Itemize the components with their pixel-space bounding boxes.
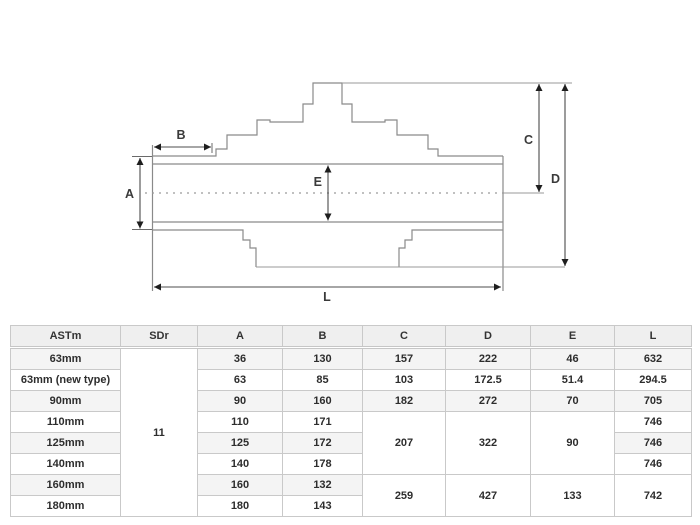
value-cell: 322 — [446, 412, 531, 475]
value-cell: 125 — [198, 433, 283, 454]
value-cell: 133 — [531, 475, 615, 517]
column-header: A — [198, 326, 283, 348]
value-cell: 272 — [446, 391, 531, 412]
table-row: 63mm (new type)6385103172.551.4294.5 — [11, 370, 692, 391]
sdr-value-cell: 11 — [121, 348, 198, 517]
value-cell: 742 — [615, 475, 692, 517]
column-header: D — [446, 326, 531, 348]
label-D: D — [551, 172, 560, 186]
value-cell: 160 — [198, 475, 283, 496]
value-cell: 294.5 — [615, 370, 692, 391]
size-label-cell: 63mm (new type) — [11, 370, 121, 391]
value-cell: 157 — [363, 348, 446, 370]
value-cell: 63 — [198, 370, 283, 391]
label-L: L — [323, 290, 331, 304]
label-E: E — [314, 175, 322, 189]
column-header: SDr — [121, 326, 198, 348]
value-cell: 143 — [283, 496, 363, 517]
spec-table-container: ASTmSDrABCDEL 63mm11361301572224663263mm… — [10, 325, 692, 517]
table-row: 63mm113613015722246632 — [11, 348, 692, 370]
label-C: C — [524, 133, 533, 147]
table-body: 63mm11361301572224663263mm (new type)638… — [11, 348, 692, 517]
table-row: 90mm9016018227270705 — [11, 391, 692, 412]
value-cell: 259 — [363, 475, 446, 517]
size-label-cell: 180mm — [11, 496, 121, 517]
column-header: L — [615, 326, 692, 348]
value-cell: 46 — [531, 348, 615, 370]
size-label-cell: 160mm — [11, 475, 121, 496]
value-cell: 36 — [198, 348, 283, 370]
table-header: ASTmSDrABCDEL — [11, 326, 692, 348]
value-cell: 172.5 — [446, 370, 531, 391]
bottom-profile-right — [399, 230, 503, 267]
value-cell: 70 — [531, 391, 615, 412]
value-cell: 180 — [198, 496, 283, 517]
value-cell: 90 — [198, 391, 283, 412]
column-header: ASTm — [11, 326, 121, 348]
value-cell: 90 — [531, 412, 615, 475]
column-header: C — [363, 326, 446, 348]
header-row: ASTmSDrABCDEL — [11, 326, 692, 348]
value-cell: 632 — [615, 348, 692, 370]
value-cell: 132 — [283, 475, 363, 496]
column-header: B — [283, 326, 363, 348]
value-cell: 103 — [363, 370, 446, 391]
top-profile — [152, 83, 503, 156]
value-cell: 160 — [283, 391, 363, 412]
size-label-cell: 90mm — [11, 391, 121, 412]
fitting-dimension-drawing: A B C D E L — [0, 0, 700, 320]
value-cell: 140 — [198, 454, 283, 475]
value-cell: 746 — [615, 433, 692, 454]
spec-table: ASTmSDrABCDEL 63mm11361301572224663263mm… — [10, 325, 692, 517]
size-label-cell: 140mm — [11, 454, 121, 475]
fitting-outline — [145, 83, 505, 291]
value-cell: 110 — [198, 412, 283, 433]
value-cell: 130 — [283, 348, 363, 370]
size-label-cell: 63mm — [11, 348, 121, 370]
value-cell: 171 — [283, 412, 363, 433]
dimension-labels: A B C D E L — [125, 128, 560, 304]
value-cell: 705 — [615, 391, 692, 412]
label-B: B — [176, 128, 185, 142]
table-row: 160mm160132259427133742 — [11, 475, 692, 496]
value-cell: 182 — [363, 391, 446, 412]
label-A: A — [125, 187, 134, 201]
value-cell: 172 — [283, 433, 363, 454]
size-label-cell: 110mm — [11, 412, 121, 433]
value-cell: 207 — [363, 412, 446, 475]
value-cell: 746 — [615, 454, 692, 475]
column-header: E — [531, 326, 615, 348]
value-cell: 85 — [283, 370, 363, 391]
bottom-profile-left — [152, 230, 256, 267]
value-cell: 178 — [283, 454, 363, 475]
size-label-cell: 125mm — [11, 433, 121, 454]
table-row: 110mm11017120732290746 — [11, 412, 692, 433]
value-cell: 427 — [446, 475, 531, 517]
value-cell: 222 — [446, 348, 531, 370]
page: { "diagram": { "labels": { "A": "A", "B"… — [0, 0, 700, 525]
value-cell: 746 — [615, 412, 692, 433]
value-cell: 51.4 — [531, 370, 615, 391]
